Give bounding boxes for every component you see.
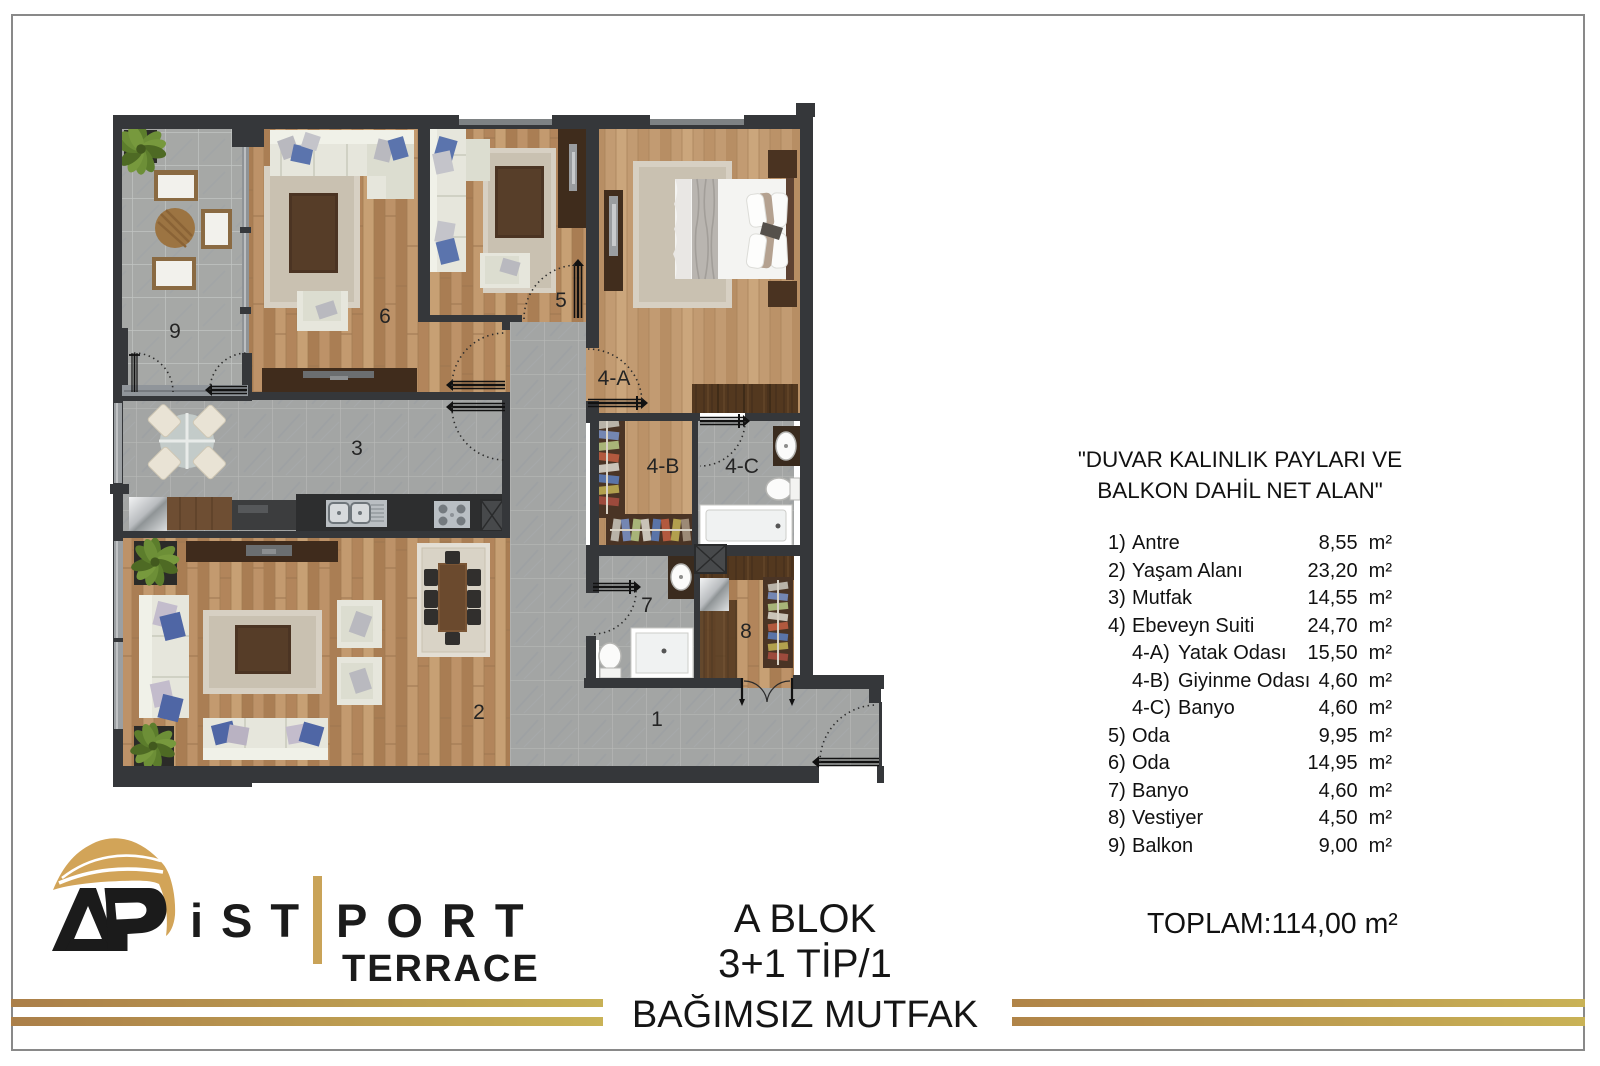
svg-text:1: 1	[651, 708, 663, 731]
svg-text:PORT: PORT	[336, 894, 543, 947]
svg-text:2: 2	[473, 701, 485, 724]
svg-text:5: 5	[555, 289, 567, 312]
svg-text:TERRACE: TERRACE	[342, 948, 540, 990]
svg-text:4-C: 4-C	[725, 455, 759, 478]
svg-text:3: 3	[351, 437, 363, 460]
svg-text:6: 6	[379, 305, 391, 328]
svg-text:4-A: 4-A	[598, 367, 631, 390]
svg-text:7: 7	[641, 594, 653, 617]
svg-text:iST: iST	[190, 894, 317, 947]
svg-text:8: 8	[740, 620, 752, 643]
svg-text:9: 9	[169, 320, 181, 343]
svg-text:4-B: 4-B	[647, 455, 680, 478]
